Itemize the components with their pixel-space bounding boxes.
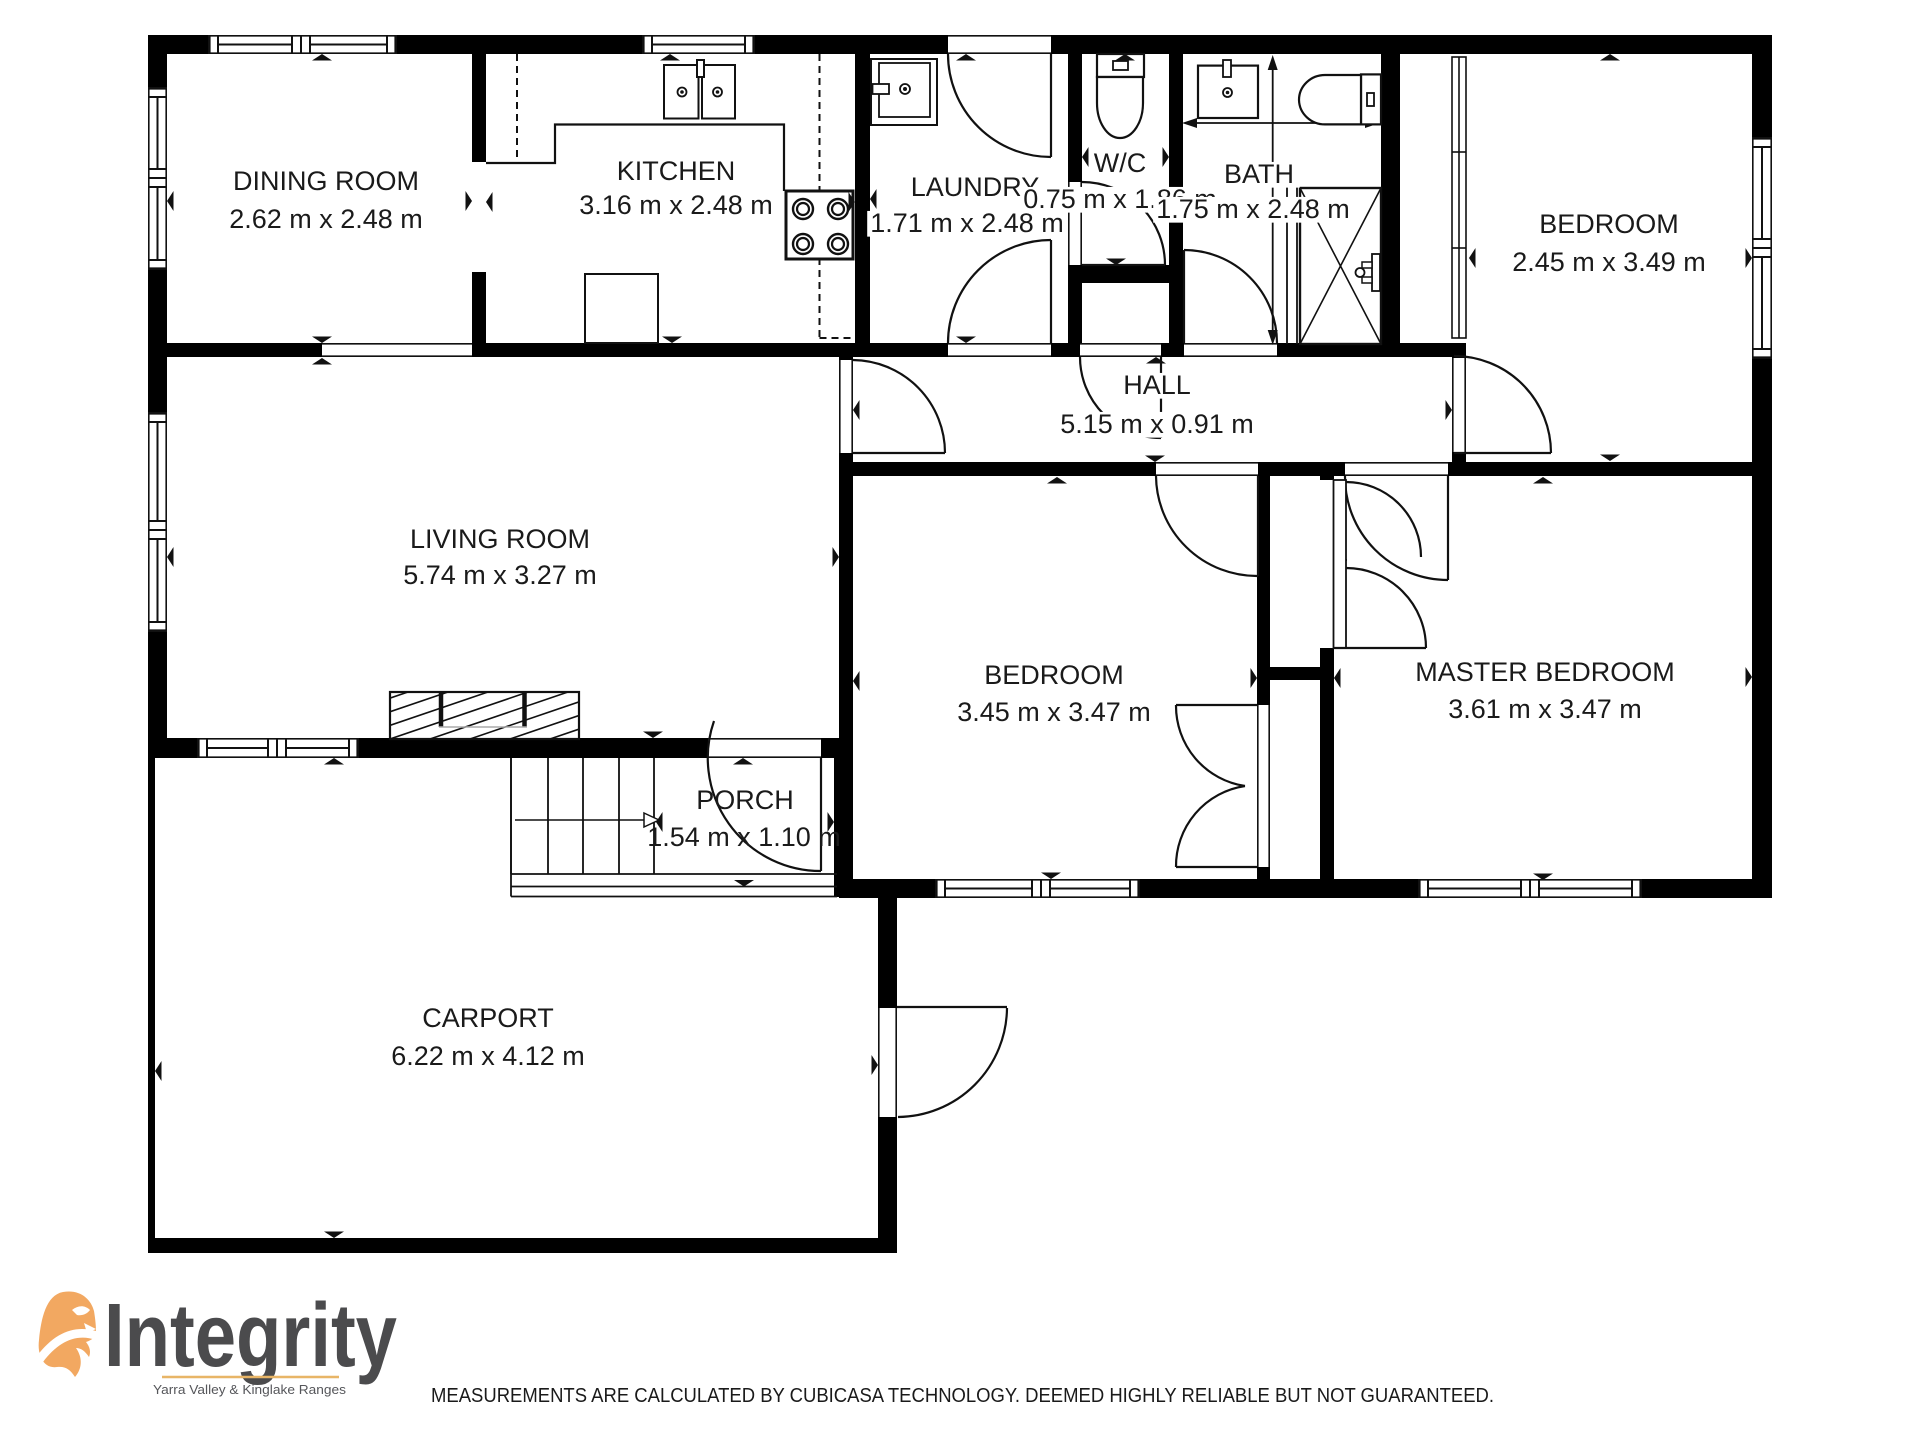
svg-text:BEDROOM: BEDROOM [984, 660, 1124, 690]
svg-text:HALL: HALL [1123, 370, 1191, 400]
svg-text:PORCH: PORCH [696, 785, 794, 815]
svg-text:W/C: W/C [1094, 148, 1146, 178]
svg-text:2.62 m x 2.48 m: 2.62 m x 2.48 m [229, 204, 423, 234]
svg-text:3.45 m x 3.47 m: 3.45 m x 3.47 m [957, 697, 1151, 727]
svg-text:LAUNDRY: LAUNDRY [911, 172, 1040, 202]
svg-text:2.45 m x 3.49 m: 2.45 m x 3.49 m [1512, 247, 1706, 277]
svg-text:5.15 m x 0.91 m: 5.15 m x 0.91 m [1060, 409, 1254, 439]
svg-text:1.54 m x 1.10 m: 1.54 m x 1.10 m [647, 822, 841, 852]
svg-text:1.75 m x 2.48 m: 1.75 m x 2.48 m [1156, 194, 1350, 224]
svg-text:LIVING ROOM: LIVING ROOM [410, 524, 590, 554]
svg-text:Integrity: Integrity [104, 1286, 397, 1386]
svg-text:3.16 m x 2.48 m: 3.16 m x 2.48 m [579, 190, 773, 220]
svg-text:MASTER BEDROOM: MASTER BEDROOM [1415, 657, 1675, 687]
svg-text:3.61 m x 3.47 m: 3.61 m x 3.47 m [1448, 694, 1642, 724]
svg-text:BEDROOM: BEDROOM [1539, 209, 1679, 239]
svg-text:KITCHEN: KITCHEN [617, 156, 736, 186]
svg-text:BATH: BATH [1224, 159, 1294, 189]
svg-text:MEASUREMENTS ARE CALCULATED BY: MEASUREMENTS ARE CALCULATED BY CUBICASA … [431, 1385, 1494, 1407]
svg-text:5.74 m x 3.27 m: 5.74 m x 3.27 m [403, 560, 597, 590]
svg-text:DINING ROOM: DINING ROOM [233, 166, 419, 196]
svg-text:6.22 m x 4.12 m: 6.22 m x 4.12 m [391, 1041, 585, 1071]
svg-text:CARPORT: CARPORT [422, 1003, 554, 1033]
svg-text:Yarra Valley & Kinglake Ranges: Yarra Valley & Kinglake Ranges [153, 1382, 347, 1397]
